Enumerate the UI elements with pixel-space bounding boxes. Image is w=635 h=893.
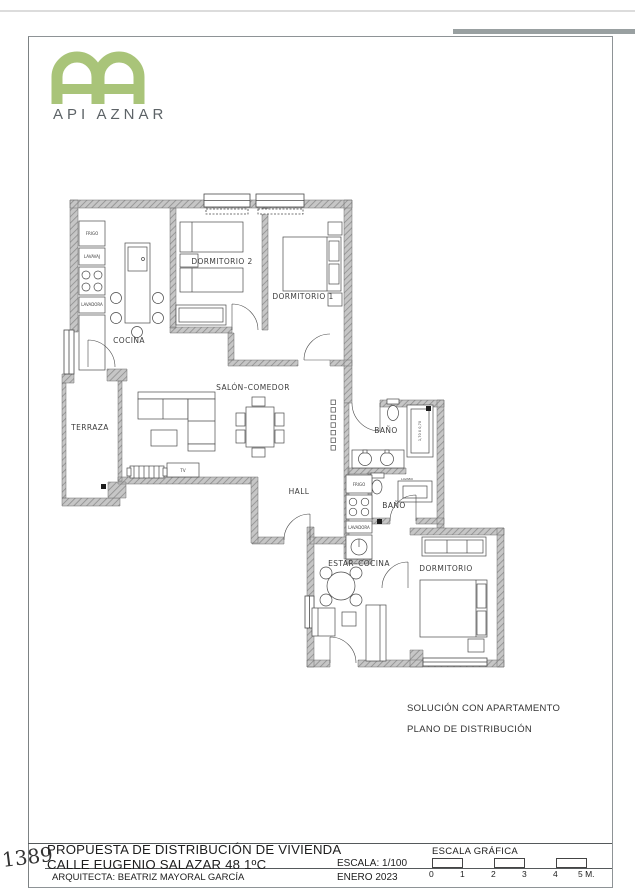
label-dormitorio1: DORMITORIO 1	[272, 292, 333, 301]
plan-notes: SOLUCIÓN CON APARTAMENTO PLANO DE DISTRI…	[407, 701, 560, 737]
floorplan-drawing: COCINA DORMITORIO 2 DORMITORIO 1 TERRAZA…	[0, 0, 635, 893]
label-salon-comedor: SALÓN–COMEDOR	[216, 383, 290, 392]
label-hall: HALL	[289, 487, 310, 496]
label-dormitorio2: DORMITORIO 2	[191, 257, 252, 266]
scale-label: ESCALA: 1/100	[337, 858, 407, 869]
label-bano-1: BAÑO	[374, 426, 397, 435]
label-frigo-1: FRIGO	[86, 231, 99, 236]
label-cocina: COCINA	[113, 336, 145, 345]
note-line-2: PLANO DE DISTRIBUCIÓN	[407, 722, 560, 737]
note-line-1: SOLUCIÓN CON APARTAMENTO	[407, 701, 560, 716]
architect-label: ARQUITECTA: BEATRIZ MAYORAL GARCÍA	[52, 872, 244, 883]
label-dormitorio-apartamento: DORMITORIO	[419, 564, 472, 573]
plan-sheet-page: API AZNAR	[0, 0, 635, 893]
scalebar-tick-3: 3	[522, 869, 527, 879]
label-bano-2: BAÑO	[382, 501, 405, 510]
label-tv: TV	[179, 468, 185, 473]
label-lavavajillas: LAVAVAJ	[84, 254, 100, 259]
label-lavadora-1: LAVADORA	[81, 302, 103, 307]
furniture	[79, 221, 487, 661]
label-terraza: TERRAZA	[70, 423, 109, 432]
date-label: ENERO 2023	[337, 872, 398, 883]
scalebar-tick-2: 2	[491, 869, 496, 879]
label-shower-dimensions: 1,70 X 0,70	[418, 421, 422, 441]
label-lavabo: LAVABO	[401, 477, 414, 481]
scalebar-tick-5: 5 M.	[578, 869, 595, 879]
project-title: PROPUESTA DE DISTRIBUCIÓN DE VIVIENDA	[47, 842, 341, 857]
label-estar-cocina: ESTAR–COCINA	[328, 559, 390, 568]
label-frigo-2: FRIGO	[353, 482, 366, 487]
scalebar-tick-1: 1	[460, 869, 465, 879]
scalebar-title: ESCALA GRÁFICA	[432, 846, 518, 857]
sliding-partition	[331, 400, 336, 450]
scalebar-segment-3	[556, 858, 587, 868]
scalebar-segment-1	[432, 858, 463, 868]
scalebar-tick-4: 4	[553, 869, 558, 879]
scalebar-tick-0: 0	[429, 869, 434, 879]
label-lavadora-2: LAVADORA	[348, 525, 370, 530]
project-address: CALLE EUGENIO SALAZAR 48 1ºC	[47, 857, 266, 872]
scalebar-segment-2	[494, 858, 525, 868]
